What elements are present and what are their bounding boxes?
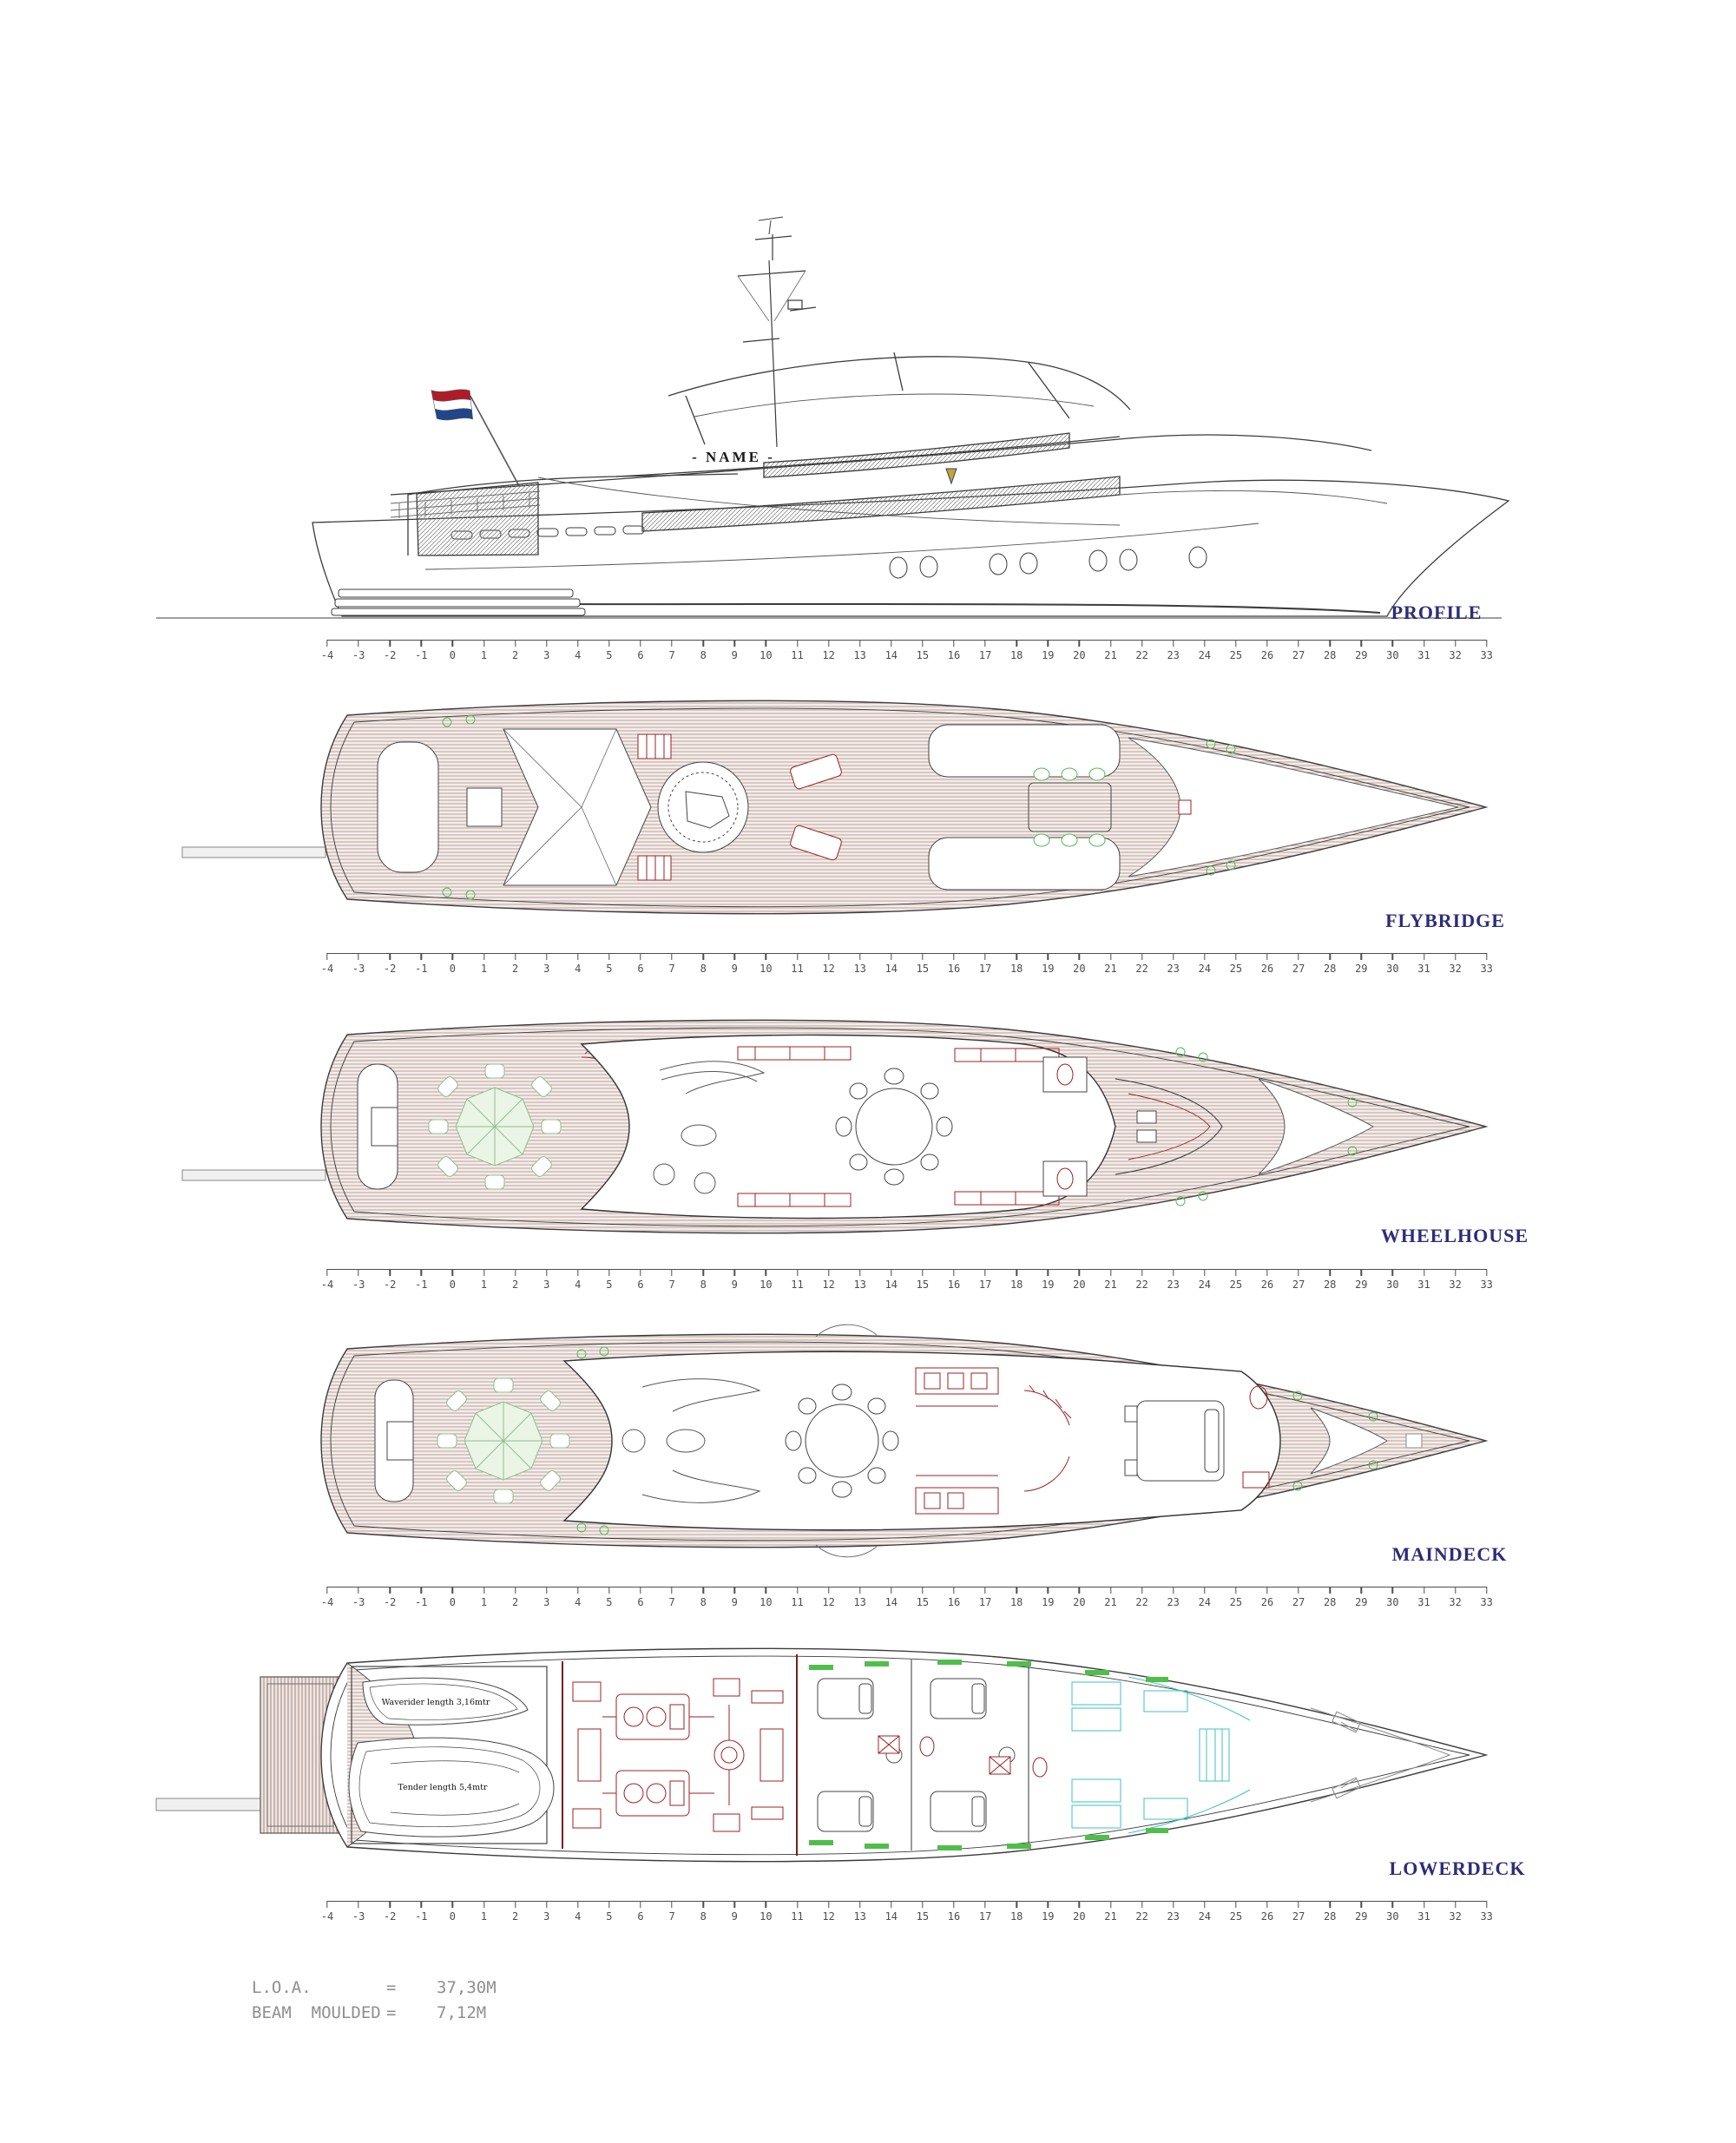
ruler-number: -1: [415, 649, 427, 661]
scale-ruler-wheelhouse: -4-3-2-101234567891011121314151617181920…: [130, 1269, 1528, 1300]
tender-label: Tender length 5,4mtr: [398, 1783, 488, 1792]
ruler-tick: [1361, 1587, 1362, 1594]
ruler-number: 16: [948, 649, 960, 661]
ruler-tick: [546, 953, 547, 960]
ruler-tick: [1141, 640, 1142, 647]
ruler-number: 3: [543, 1596, 549, 1608]
ruler-tick: [1455, 953, 1456, 960]
ruler-number: 11: [791, 1279, 803, 1291]
ruler-number: -3: [352, 1910, 365, 1923]
ruler-tick: [326, 1587, 327, 1594]
ruler-number: 22: [1135, 1910, 1147, 1923]
ruler-number: 4: [575, 1596, 581, 1608]
ruler-number: 29: [1355, 1596, 1367, 1608]
ruler-tick: [1361, 953, 1362, 960]
ruler-tick: [483, 640, 484, 647]
ruler-tick: [1266, 1269, 1267, 1276]
ruler-number: 23: [1167, 1279, 1179, 1291]
ruler-tick: [1329, 953, 1330, 960]
ruler-tick: [671, 953, 672, 960]
ruler-tick: [859, 640, 860, 647]
ruler-tick: [1204, 953, 1205, 960]
ruler-tick: [1204, 1269, 1205, 1276]
ruler-tick: [1266, 1901, 1267, 1908]
ruler-tick: [1424, 640, 1424, 647]
gangway: [182, 847, 325, 858]
ruler-number: 27: [1292, 1596, 1305, 1608]
jacuzzi: [658, 762, 748, 852]
ruler-tick: [1266, 1587, 1267, 1594]
ruler-number: 29: [1355, 1279, 1367, 1291]
ruler-number: 31: [1417, 963, 1430, 975]
ruler-tick: [671, 640, 672, 647]
ruler-number: 24: [1199, 963, 1211, 975]
ruler-tick: [702, 1587, 703, 1594]
ga-drawing-sheet: - NAME - PROFILE -4-3-2-1012345678910111…: [0, 0, 1736, 2143]
ruler-number: 8: [700, 1910, 707, 1923]
ruler-tick: [734, 640, 735, 647]
ruler-number: 27: [1292, 1910, 1305, 1923]
ruler-number: 27: [1292, 649, 1305, 661]
ruler-number: 7: [668, 649, 674, 661]
waverider-label: Waverider length 3,16mtr: [382, 1698, 490, 1707]
ruler-tick: [1235, 953, 1236, 960]
ruler-number: 19: [1042, 1596, 1054, 1608]
ruler-number: 7: [668, 1279, 674, 1291]
ruler-tick: [1110, 1587, 1111, 1594]
ruler-number: 11: [791, 963, 803, 975]
ruler-tick: [1048, 953, 1049, 960]
ruler-number: -2: [384, 649, 396, 661]
ruler-tick: [577, 640, 578, 647]
ruler-number: 31: [1417, 1596, 1430, 1608]
ruler-tick: [766, 1269, 766, 1276]
ruler-line: [327, 1587, 1487, 1588]
ruler-tick: [953, 640, 954, 647]
ruler-tick: [1141, 953, 1142, 960]
ruler-tick: [546, 1901, 547, 1908]
ruler-tick: [1486, 953, 1487, 960]
ruler-tick: [1392, 953, 1393, 960]
ruler-tick: [671, 1587, 672, 1594]
ruler-number: 25: [1230, 1279, 1242, 1291]
ruler-tick: [766, 1587, 766, 1594]
ruler-number: 25: [1230, 649, 1242, 661]
ruler-number: 5: [606, 1596, 612, 1608]
ruler-tick: [734, 1269, 735, 1276]
ruler-number: 6: [637, 1910, 643, 1923]
ruler-number: 30: [1386, 1910, 1398, 1923]
ruler-tick: [1079, 1269, 1080, 1276]
ruler-number: 10: [759, 1596, 772, 1608]
ruler-tick: [452, 953, 453, 960]
ruler-number: 16: [948, 1596, 960, 1608]
hardtop-arch: [668, 352, 1130, 444]
ruler-tick: [546, 640, 547, 647]
ruler-tick: [515, 640, 516, 647]
ruler-tick: [608, 1269, 609, 1276]
ruler-number: 9: [732, 1279, 738, 1291]
ruler-number: 3: [543, 649, 549, 661]
ruler-number: -4: [321, 649, 333, 661]
ruler-number: 15: [917, 1910, 929, 1923]
ruler-number: 10: [759, 649, 772, 661]
ruler-tick: [1329, 1587, 1330, 1594]
ruler-tick: [1266, 953, 1267, 960]
ruler-tick: [797, 1269, 798, 1276]
ruler-tick: [891, 640, 891, 647]
ruler-tick: [1298, 640, 1299, 647]
ruler-number: 23: [1167, 1596, 1179, 1608]
ruler-tick: [1079, 1901, 1080, 1908]
ruler-tick: [515, 953, 516, 960]
ruler-tick: [577, 953, 578, 960]
ruler-tick: [358, 1587, 358, 1594]
ruler-number: -1: [415, 1596, 427, 1608]
ruler-tick: [734, 953, 735, 960]
ruler-number: 24: [1199, 1910, 1211, 1923]
ruler-number: 20: [1073, 1279, 1085, 1291]
view-label-wheelhouse: WHEELHOUSE: [1381, 1225, 1529, 1247]
ruler-number: 33: [1480, 1596, 1492, 1608]
ruler-tick: [515, 1587, 516, 1594]
ruler-tick: [1298, 1269, 1299, 1276]
ruler-tick: [984, 1269, 985, 1276]
ruler-tick: [1141, 1269, 1142, 1276]
ruler-tick: [421, 953, 422, 960]
ruler-tick: [483, 1269, 484, 1276]
ruler-number: 32: [1449, 1910, 1461, 1923]
ruler-number: 18: [1010, 1910, 1023, 1923]
ruler-number: -2: [384, 1279, 396, 1291]
ruler-tick: [1079, 1587, 1080, 1594]
ruler-number: 1: [481, 1596, 487, 1608]
ruler-number: 0: [450, 1596, 456, 1608]
ruler-tick: [1016, 953, 1016, 960]
ruler-number: 4: [575, 963, 581, 975]
ruler-tick: [1141, 1901, 1142, 1908]
vessel-name: - NAME -: [692, 449, 775, 465]
ruler-number: 14: [885, 963, 898, 975]
spec-equals: =: [386, 1975, 437, 2001]
ruler-number: 2: [512, 649, 518, 661]
ruler-number: 8: [700, 1279, 707, 1291]
ruler-tick: [922, 1901, 923, 1908]
ruler-tick: [546, 1269, 547, 1276]
ruler-tick: [984, 953, 985, 960]
ruler-number: -4: [321, 1910, 333, 1923]
ruler-number: 11: [791, 1596, 803, 1608]
ruler-tick: [1455, 1269, 1456, 1276]
ruler-number: 21: [1104, 1910, 1116, 1923]
ruler-number: 4: [575, 1910, 581, 1923]
ruler-tick: [1455, 1901, 1456, 1908]
ruler-tick: [828, 1269, 829, 1276]
spec-label: BEAM MOULDED: [252, 2001, 386, 2026]
ruler-tick: [326, 953, 327, 960]
ruler-tick: [483, 1901, 484, 1908]
ruler-tick: [859, 1901, 860, 1908]
ruler-tick: [859, 1269, 860, 1276]
ruler-number: 17: [979, 649, 991, 661]
ruler-number: 23: [1167, 1910, 1179, 1923]
ruler-tick: [515, 1901, 516, 1908]
ruler-tick: [515, 1269, 516, 1276]
ruler-number: 26: [1261, 1910, 1273, 1923]
ruler-number: 13: [853, 1910, 865, 1923]
ruler-number: 31: [1417, 649, 1430, 661]
maindeck-view: [130, 1311, 1528, 1571]
ruler-number: 2: [512, 1910, 518, 1923]
spec-value: 37,30M: [437, 1975, 496, 2001]
ruler-tick: [1048, 1269, 1049, 1276]
ruler-tick: [577, 1901, 578, 1908]
ruler-tick: [953, 1901, 954, 1908]
ruler-tick: [702, 1901, 703, 1908]
ruler-number: 21: [1104, 649, 1116, 661]
ruler-number: 11: [791, 1910, 803, 1923]
ruler-tick: [1361, 1269, 1362, 1276]
ruler-number: 0: [450, 649, 456, 661]
spec-row-loa: L.O.A. = 37,30M: [252, 1975, 496, 2001]
ruler-number: 10: [759, 1279, 772, 1291]
ruler-number: 0: [450, 963, 456, 975]
ruler-tick: [640, 640, 641, 647]
ruler-number: 8: [700, 963, 707, 975]
ruler-number: 9: [732, 1596, 738, 1608]
ruler-number: 22: [1135, 1596, 1147, 1608]
spec-value: 7,12M: [437, 2001, 486, 2026]
view-label-maindeck: MAINDECK: [1392, 1543, 1508, 1566]
ruler-number: 10: [759, 1910, 772, 1923]
ruler-number: 5: [606, 649, 612, 661]
ruler-tick: [546, 1587, 547, 1594]
ruler-number: 15: [917, 963, 929, 975]
ruler-tick: [1173, 953, 1174, 960]
ruler-number: 21: [1104, 1279, 1116, 1291]
ruler-number: -3: [352, 963, 365, 975]
ruler-tick: [358, 640, 358, 647]
ruler-number: 22: [1135, 649, 1147, 661]
ruler-number: 7: [668, 1910, 674, 1923]
ruler-number: -4: [321, 1279, 333, 1291]
ruler-number: 30: [1386, 1596, 1398, 1608]
ruler-number: 27: [1292, 963, 1305, 975]
ruler-tick: [1173, 1269, 1174, 1276]
ruler-tick: [1361, 1901, 1362, 1908]
ruler-tick: [1455, 1587, 1456, 1594]
ruler-tick: [1141, 1587, 1142, 1594]
ruler-tick: [1486, 1587, 1487, 1594]
ruler-number: 14: [885, 1279, 898, 1291]
ruler-number: 28: [1324, 1279, 1336, 1291]
ruler-tick: [1016, 640, 1016, 647]
ruler-number: 25: [1230, 1596, 1242, 1608]
principal-dimensions: L.O.A. = 37,30M BEAM MOULDED = 7,12M: [252, 1975, 496, 2026]
ruler-number: 29: [1355, 649, 1367, 661]
ruler-number: 26: [1261, 1279, 1273, 1291]
ruler-number: -3: [352, 649, 365, 661]
ruler-number: 16: [948, 1910, 960, 1923]
ruler-number: -4: [321, 1596, 333, 1608]
ruler-number: 17: [979, 1279, 991, 1291]
ruler-number: 3: [543, 1910, 549, 1923]
view-label-flybridge: FLYBRIDGE: [1385, 910, 1505, 932]
ruler-tick: [421, 1269, 422, 1276]
ruler-tick: [671, 1269, 672, 1276]
ruler-tick: [389, 1587, 390, 1594]
ruler-tick: [640, 1269, 641, 1276]
ruler-number: 5: [606, 1910, 612, 1923]
ruler-number: 5: [606, 963, 612, 975]
ruler-number: 13: [853, 963, 865, 975]
ruler-tick: [891, 1587, 891, 1594]
ruler-tick: [1204, 1901, 1205, 1908]
ruler-number: 0: [450, 1279, 456, 1291]
ruler-number: 29: [1355, 963, 1367, 975]
ruler-number: 9: [732, 963, 738, 975]
spec-equals: =: [386, 2001, 437, 2026]
ruler-number: 28: [1324, 1910, 1336, 1923]
ruler-tick: [859, 953, 860, 960]
ruler-number: 15: [917, 1596, 929, 1608]
ruler-number: 4: [575, 649, 581, 661]
ruler-number: 33: [1480, 649, 1492, 661]
ruler-tick: [1204, 1587, 1205, 1594]
ruler-number: 26: [1261, 1596, 1273, 1608]
ruler-number: -3: [352, 1596, 365, 1608]
ruler-number: 17: [979, 963, 991, 975]
ruler-number: 8: [700, 1596, 707, 1608]
ruler-tick: [326, 640, 327, 647]
ruler-number: -4: [321, 963, 333, 975]
ruler-tick: [1079, 640, 1080, 647]
ruler-tick: [702, 953, 703, 960]
ruler-number: 30: [1386, 649, 1398, 661]
ruler-tick: [1173, 1587, 1174, 1594]
ruler-tick: [1173, 1901, 1174, 1908]
ruler-tick: [452, 1587, 453, 1594]
ruler-tick: [1016, 1587, 1016, 1594]
ruler-tick: [953, 1269, 954, 1276]
ruler-number: -3: [352, 1279, 365, 1291]
ruler-tick: [640, 1587, 641, 1594]
ruler-number: 13: [853, 1596, 865, 1608]
ruler-number: 1: [481, 1279, 487, 1291]
ruler-tick: [984, 1901, 985, 1908]
ruler-number: -2: [384, 1596, 396, 1608]
ruler-tick: [389, 953, 390, 960]
ruler-number: 1: [481, 963, 487, 975]
ruler-number: 19: [1042, 1279, 1054, 1291]
ruler-tick: [452, 1901, 453, 1908]
ruler-tick: [1173, 640, 1174, 647]
ruler-number: 23: [1167, 649, 1179, 661]
ruler-number: 23: [1167, 963, 1179, 975]
ruler-number: 19: [1042, 1910, 1054, 1923]
ruler-tick: [1110, 1901, 1111, 1908]
ruler-number: 19: [1042, 649, 1054, 661]
ruler-line: [327, 1901, 1487, 1902]
ruler-number: 12: [822, 1596, 834, 1608]
ruler-number: -1: [415, 963, 427, 975]
ruler-number: 16: [948, 1279, 960, 1291]
ruler-number: 25: [1230, 1910, 1242, 1923]
ruler-number: 32: [1449, 649, 1461, 661]
ruler-tick: [797, 1901, 798, 1908]
ruler-number: 3: [543, 963, 549, 975]
ruler-number: 20: [1073, 1910, 1085, 1923]
ruler-tick: [1110, 1269, 1111, 1276]
ruler-number: 9: [732, 649, 738, 661]
ruler-number: 26: [1261, 963, 1273, 975]
ruler-tick: [483, 953, 484, 960]
ruler-number: 17: [979, 1910, 991, 1923]
ruler-number: 15: [917, 1279, 929, 1291]
ruler-number: 16: [948, 963, 960, 975]
owner-bed: [1125, 1401, 1224, 1481]
ruler-number: 18: [1010, 963, 1023, 975]
lowerdeck-view: Waverider length 3,16mtr Tender length 5…: [130, 1625, 1528, 1885]
ruler-number: 7: [668, 1596, 674, 1608]
ruler-number: 17: [979, 1596, 991, 1608]
ruler-number: 30: [1386, 1279, 1398, 1291]
ruler-tick: [797, 640, 798, 647]
ruler-tick: [891, 1269, 891, 1276]
ruler-tick: [1392, 1901, 1393, 1908]
flag-icon: [431, 382, 519, 494]
ruler-tick: [608, 640, 609, 647]
ruler-number: 32: [1449, 1279, 1461, 1291]
ruler-number: 18: [1010, 1279, 1023, 1291]
ruler-tick: [421, 1901, 422, 1908]
profile-view: - NAME -: [130, 130, 1528, 668]
ruler-number: 30: [1386, 963, 1398, 975]
ruler-number: 2: [512, 1279, 518, 1291]
ruler-tick: [1048, 1587, 1049, 1594]
ruler-tick: [797, 953, 798, 960]
transom-seat: [375, 1380, 413, 1502]
spec-label: L.O.A.: [252, 1975, 386, 2001]
gangway: [156, 1798, 260, 1811]
ruler-tick: [766, 640, 766, 647]
ruler-number: 33: [1480, 1279, 1492, 1291]
ruler-number: 6: [637, 649, 643, 661]
ruler-tick: [766, 953, 766, 960]
ruler-number: 28: [1324, 1596, 1336, 1608]
ruler-number: 2: [512, 963, 518, 975]
ruler-number: 22: [1135, 963, 1147, 975]
ruler-tick: [1486, 1901, 1487, 1908]
ruler-tick: [1204, 640, 1205, 647]
ruler-number: 21: [1104, 963, 1116, 975]
ruler-tick: [828, 953, 829, 960]
ruler-tick: [358, 1901, 358, 1908]
ruler-number: -1: [415, 1279, 427, 1291]
ruler-tick: [389, 1269, 390, 1276]
ruler-tick: [702, 640, 703, 647]
ruler-tick: [922, 1587, 923, 1594]
ruler-tick: [953, 1587, 954, 1594]
ruler-tick: [702, 1269, 703, 1276]
transom-seat: [358, 1064, 398, 1189]
ruler-tick: [577, 1587, 578, 1594]
wheelhouse-view: [130, 996, 1528, 1257]
ruler-tick: [1455, 640, 1456, 647]
ruler-tick: [358, 1269, 358, 1276]
ruler-number: 6: [637, 1279, 643, 1291]
ruler-number: 12: [822, 1910, 834, 1923]
